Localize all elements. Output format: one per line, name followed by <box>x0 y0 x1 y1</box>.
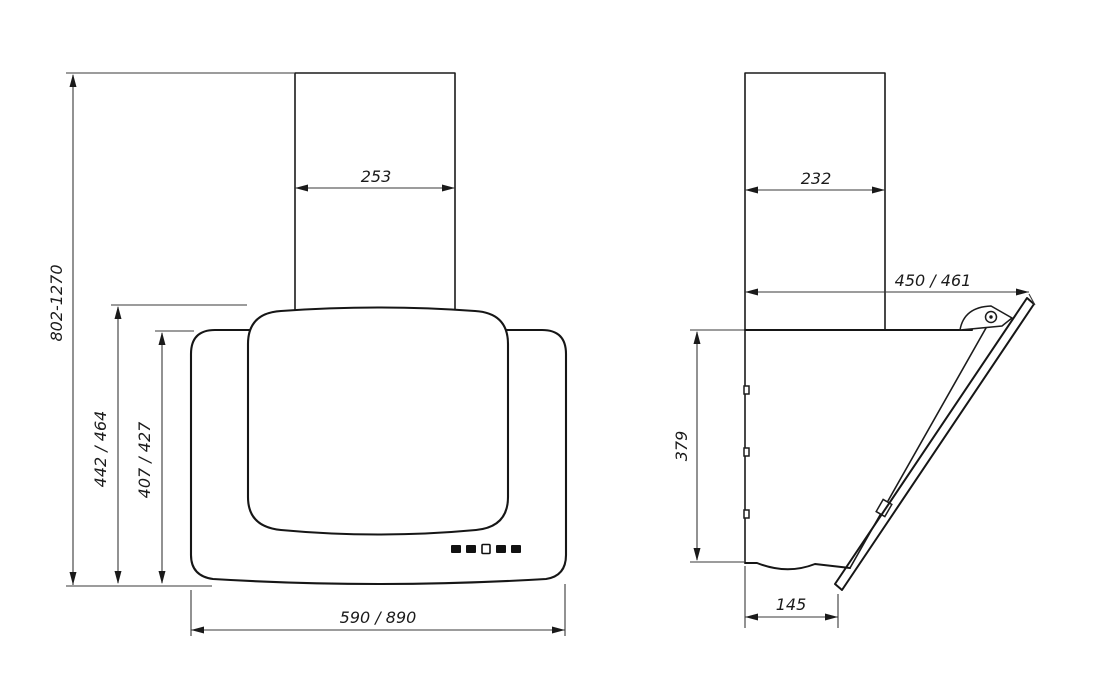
dim-label-width: 590 / 890 <box>340 608 417 627</box>
dim-total-depth: 450 / 461 <box>745 271 1035 305</box>
dim-label-mounting-height: 802-1270 <box>47 264 66 341</box>
button-4 <box>496 545 506 553</box>
side-body-bottom-edge <box>745 563 850 569</box>
button-1 <box>451 545 461 553</box>
side-view: 232 450 / 461 379 145 <box>672 73 1035 628</box>
dim-label-bottom-depth: 145 <box>776 595 807 614</box>
button-5 <box>511 545 521 553</box>
side-chimney-outline <box>745 73 885 562</box>
side-glass-panel <box>835 298 1034 590</box>
button-3-display <box>482 545 490 554</box>
dim-label-body-height: 379 <box>672 431 691 462</box>
glass-hinge <box>960 306 1012 330</box>
dim-chimney-width: 253 <box>295 167 455 192</box>
dim-width: 590 / 890 <box>191 584 565 636</box>
dim-height-body: 407 / 427 <box>135 331 194 584</box>
technical-drawing-canvas: 253 802-1270 442 / 464 407 / 427 <box>0 0 1095 700</box>
front-chimney-outline <box>295 73 455 314</box>
dim-label-height-body: 407 / 427 <box>135 421 154 498</box>
dim-label-chimney-width: 253 <box>361 167 392 186</box>
front-glass-panel <box>248 308 508 535</box>
dim-label-chimney-depth: 232 <box>801 169 832 188</box>
front-view: 253 802-1270 442 / 464 407 / 427 <box>47 73 566 636</box>
button-2 <box>466 545 476 553</box>
cooker-hood-drawing: 253 802-1270 442 / 464 407 / 427 <box>0 0 1095 700</box>
dim-chimney-depth: 232 <box>745 169 885 194</box>
dim-body-height: 379 <box>672 330 744 562</box>
dim-label-total-depth: 450 / 461 <box>895 271 972 290</box>
dim-bottom-depth: 145 <box>745 566 838 628</box>
dim-label-height-total: 442 / 464 <box>91 411 110 488</box>
